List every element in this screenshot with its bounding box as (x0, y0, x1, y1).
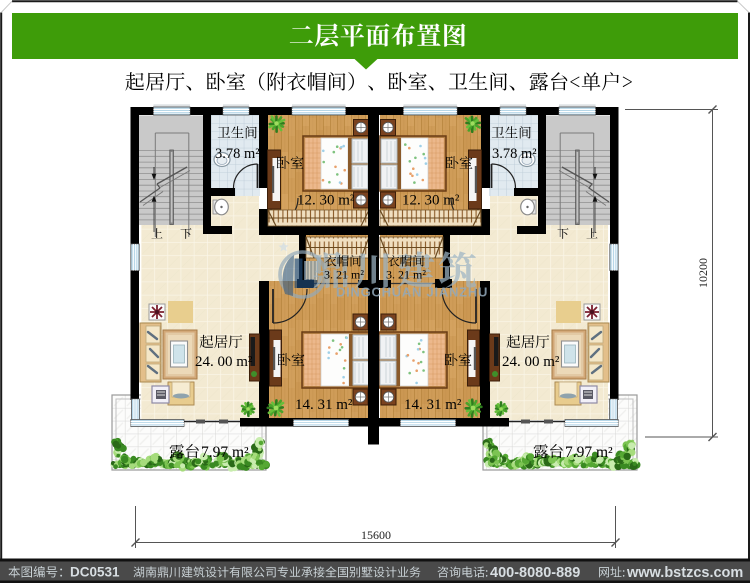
svg-text:3. 21 m²: 3. 21 m² (386, 268, 426, 282)
svg-text:15600: 15600 (361, 528, 391, 542)
svg-text:14. 31 m²: 14. 31 m² (404, 397, 462, 413)
svg-text:14. 31 m²: 14. 31 m² (295, 397, 353, 413)
svg-text:12. 30 m²: 12. 30 m² (297, 193, 355, 209)
svg-text:24. 00 m²: 24. 00 m² (502, 354, 560, 370)
svg-text:3.78 m²: 3.78 m² (492, 146, 537, 162)
svg-text:7.97 m²: 7.97 m² (201, 444, 249, 461)
svg-text:400-8080-889: 400-8080-889 (490, 565, 580, 581)
svg-text:3.78 m²: 3.78 m² (215, 146, 260, 162)
svg-text:24. 00 m²: 24. 00 m² (195, 354, 253, 370)
svg-text:7.97 m²: 7.97 m² (565, 444, 613, 461)
svg-text:3. 21 m²: 3. 21 m² (324, 268, 364, 282)
svg-text:www.bstzcs.com: www.bstzcs.com (626, 565, 743, 581)
svg-text:10200: 10200 (696, 258, 710, 288)
svg-text:12. 30 m²: 12. 30 m² (402, 193, 460, 209)
svg-text:DINGCHUAN JIANZHU: DINGCHUAN JIANZHU (336, 285, 488, 300)
svg-text:DC0531: DC0531 (70, 565, 120, 580)
